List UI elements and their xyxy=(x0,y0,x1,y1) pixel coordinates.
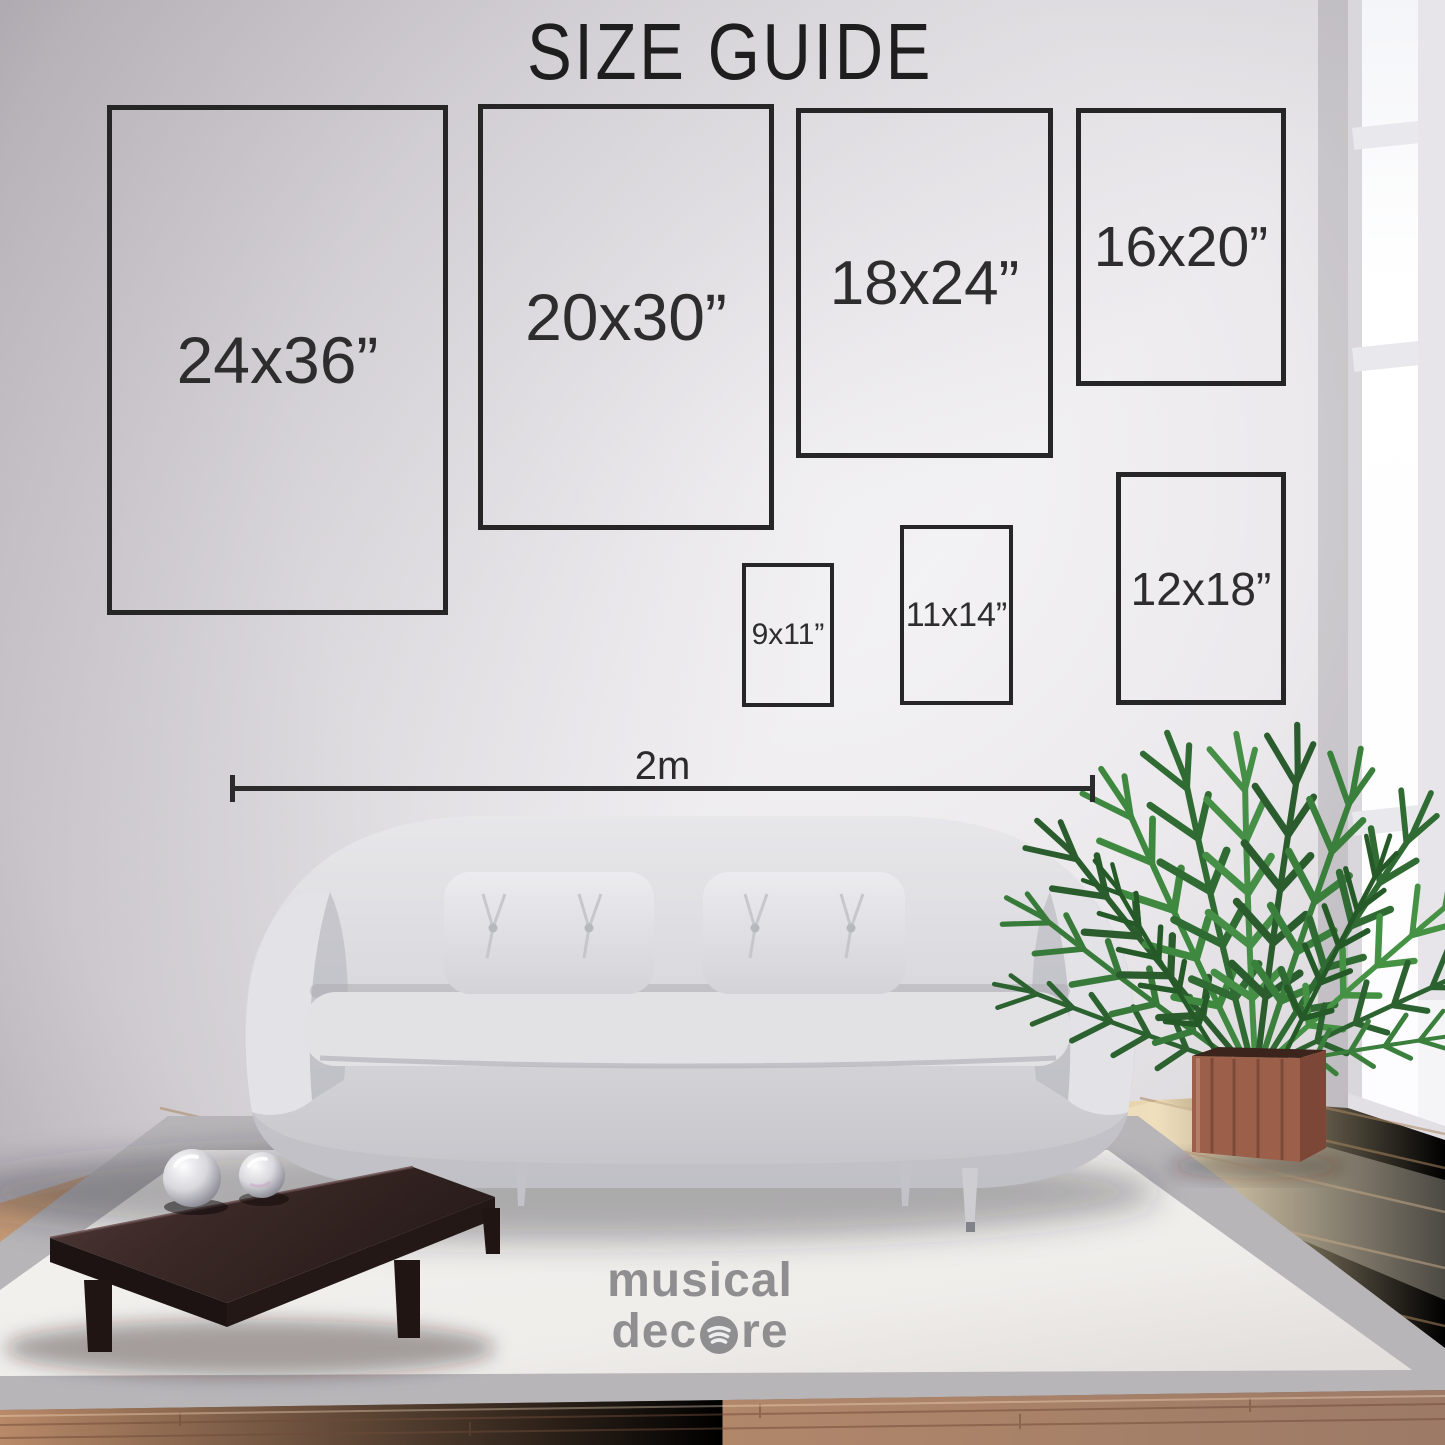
size-box-18x24: 18x24” xyxy=(796,108,1053,458)
size-label-9x11: 9x11” xyxy=(752,618,825,652)
page-title: SIZE GUIDE xyxy=(478,10,982,94)
measure-tick-left xyxy=(230,775,235,802)
measure-label: 2m xyxy=(230,744,1095,789)
size-label-18x24: 18x24” xyxy=(830,248,1020,319)
brand-watermark: musical dec re xyxy=(575,1256,825,1358)
size-label-24x36: 24x36” xyxy=(177,322,379,398)
size-label-20x30: 20x30” xyxy=(525,279,727,355)
size-box-20x30: 20x30” xyxy=(478,104,774,530)
brand-line2-suffix: re xyxy=(741,1306,788,1358)
planter xyxy=(1192,1047,1326,1162)
size-label-11x14: 11x14” xyxy=(906,596,1007,635)
size-box-12x18: 12x18” xyxy=(1116,472,1286,705)
spotify-icon xyxy=(698,1314,740,1356)
size-box-16x20: 16x20” xyxy=(1076,108,1286,386)
brand-name-line1: musical xyxy=(575,1256,825,1306)
brand-name-line2: dec re xyxy=(575,1306,825,1358)
size-label-16x20: 16x20” xyxy=(1094,214,1268,280)
brand-line2-prefix: dec xyxy=(611,1306,697,1358)
size-box-9x11: 9x11” xyxy=(742,563,834,707)
measure-tick-right xyxy=(1090,775,1095,802)
size-box-11x14: 11x14” xyxy=(900,525,1013,705)
size-label-12x18: 12x18” xyxy=(1131,562,1272,616)
sofa xyxy=(245,816,1135,1232)
measure-line xyxy=(230,786,1095,791)
size-guide-poster: SIZE GUIDE 24x36” 20x30” 18x24” 16x20” 9… xyxy=(0,0,1445,1445)
table-shadow xyxy=(5,1320,495,1376)
wall-width-measure: 2m xyxy=(230,748,1095,806)
size-box-24x36: 24x36” xyxy=(107,105,448,615)
